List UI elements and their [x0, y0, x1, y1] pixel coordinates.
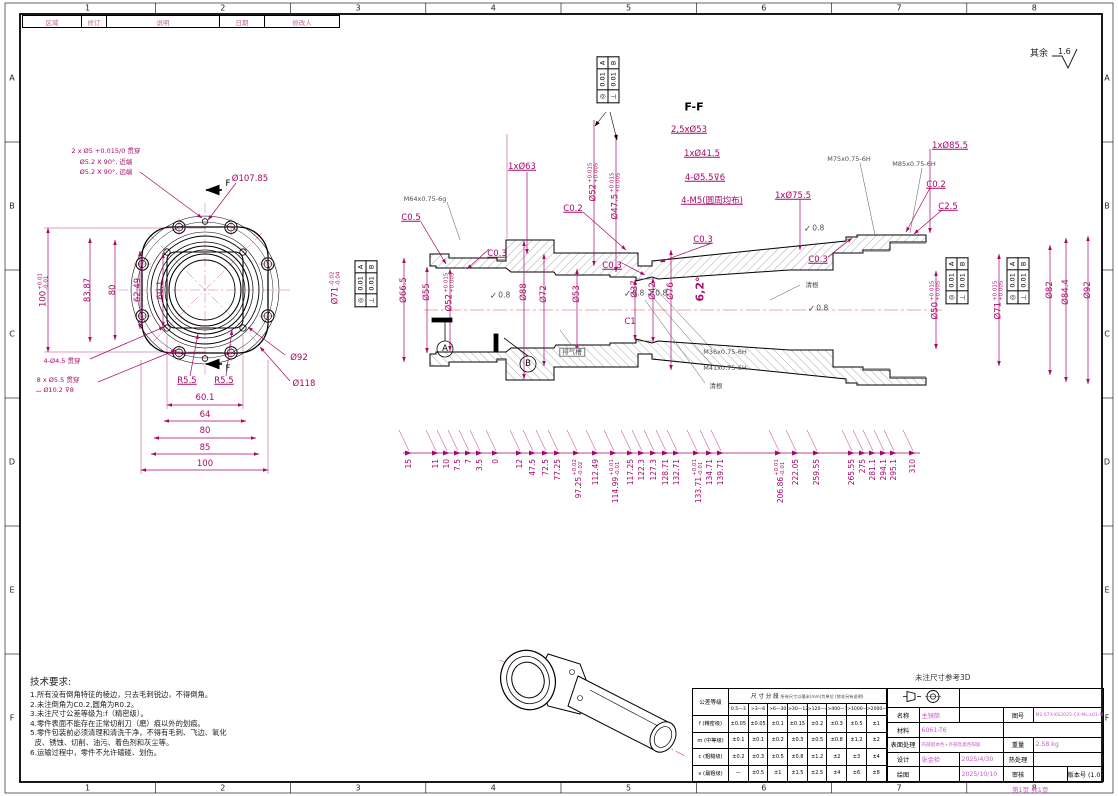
- dim-c0-5: C0.5: [401, 214, 420, 223]
- frame-col-6-top: 6: [761, 3, 766, 12]
- revision-header: 区域: [23, 16, 82, 27]
- note-qinggen-1: 清根: [806, 282, 819, 289]
- draw-label: 绘图: [887, 767, 919, 782]
- fcf-cell: 0.01: [597, 69, 608, 90]
- weight-value: 2.58 kg: [1033, 738, 1103, 753]
- chain-dim-281.1: 281.1: [869, 459, 877, 480]
- tol-value: ±0.05: [748, 716, 768, 733]
- dim-phi55: Ø55: [423, 283, 432, 301]
- tol-value: ±1.5: [788, 765, 808, 782]
- material-label: 材料: [887, 723, 919, 738]
- datum-a-label: A: [442, 345, 448, 354]
- dim-64: 64: [200, 411, 211, 420]
- note-8xphi5-5: 8 x Ø5.5 贯穿: [37, 377, 80, 384]
- chain-dim-0: 0: [492, 459, 500, 464]
- fcf-cell: A: [946, 258, 957, 269]
- chain-dim-12: 12: [516, 459, 524, 469]
- fcf-cell: B: [608, 57, 619, 68]
- dim-1x63: 1xØ63: [508, 163, 536, 172]
- frame-col-7-bottom: 7: [897, 784, 902, 793]
- tol-col-header: >1000—2000: [847, 704, 867, 716]
- dim-phi118: Ø118: [293, 380, 316, 389]
- frame-col-8-top: 8: [1032, 3, 1037, 12]
- frame-col-5-bottom: 5: [626, 784, 631, 793]
- frame-col-5-top: 5: [626, 3, 631, 12]
- dim-phi71-left: Ø71-0.02-0.04: [331, 272, 342, 305]
- tol-value: ±2.5: [807, 765, 827, 782]
- frame-row-B-right: B: [1104, 202, 1110, 211]
- name-label: 名称: [887, 707, 919, 723]
- tol-value: ±1.2: [847, 732, 867, 749]
- fcf-cell: B: [1018, 258, 1029, 269]
- fcf-cell: ◎: [355, 294, 366, 307]
- dim-c0-3-c: C0.3: [693, 236, 712, 245]
- dim-r5-5-right: R5.5: [214, 377, 233, 386]
- dim-1x85-5: 1xØ85.5: [932, 142, 968, 151]
- dim-c0-2-m: C0.2: [563, 205, 582, 214]
- frame-row-C-right: C: [1104, 330, 1110, 339]
- note-cbore: ⌴ Ø10.2 ⊽8: [36, 387, 74, 394]
- tol-value: ±0.5: [807, 732, 827, 749]
- frame-row-B-left: B: [9, 202, 15, 211]
- thread-m64: M64x0.75-6g: [404, 196, 447, 203]
- chain-dim-7: 7: [465, 459, 473, 464]
- chain-dim-127.3: 127.3: [650, 459, 658, 480]
- note-vent-groove: 排气槽: [559, 348, 585, 357]
- heat-label: 热处理: [1003, 752, 1033, 767]
- dwg-number: M2.67X-KS2025-CX-ML-L01-M11: [1033, 707, 1103, 723]
- finish-value: 内部铝本色+外部亮黑色阳极: [919, 738, 1003, 753]
- material-value: 6061-T6: [919, 723, 1003, 738]
- tol-col-header: >120—400: [807, 704, 827, 716]
- dim-phi92-right: Ø92: [1084, 281, 1093, 299]
- chain-dim-133.71: 133.71+0.01-0.01: [693, 459, 704, 503]
- fcf-cell: A: [355, 261, 366, 272]
- seg-title: 尺 寸 分 段: [751, 694, 779, 700]
- note-csk-near: Ø5.2 X 90°, 近端: [80, 159, 133, 166]
- chain-dim-310: 310: [909, 459, 917, 473]
- section-f-top: F: [226, 180, 231, 189]
- drawing-sheet: 1122334455667788AABBCCDDEEFF 区域修订说明日期修改人…: [0, 0, 1118, 796]
- chain-dim-295.1: 295.1: [890, 459, 898, 480]
- tol-value: ±0.5: [748, 765, 768, 782]
- tol-value: ±0.1: [748, 732, 768, 749]
- ref-3d-note: 未注尺寸参考3D: [915, 672, 971, 683]
- tol-value: ±2: [827, 749, 847, 766]
- tol-value: ±0.5: [847, 716, 867, 733]
- tol-value: ±3: [847, 749, 867, 766]
- dim-80-h: 80: [200, 427, 211, 436]
- heat-value: [1033, 752, 1103, 767]
- frame-col-6-bottom: 6: [761, 784, 766, 793]
- dim-phi84-4: Ø84.4: [1062, 279, 1071, 305]
- section-f-bot: F: [226, 365, 231, 374]
- tol-col-header: >30—120: [788, 704, 808, 716]
- chain-dim-47.5: 47.5: [529, 459, 537, 476]
- tol-value: ±0.5: [768, 749, 788, 766]
- fcf-cell: 0.01: [366, 273, 377, 294]
- fcf-cell: B: [957, 258, 968, 269]
- tech-line-5: 5.零件包装前必须清理和清洗干净，不得有毛刺、飞边、氧化: [30, 728, 227, 738]
- datum-fcf-phi71: ◎0.01A⊥0.01B: [1007, 258, 1030, 305]
- chain-dim-134.71: 134.71: [706, 459, 714, 485]
- dim-angle-6-2: 6,2°: [695, 277, 706, 302]
- dim-60-1-v: 60.1: [157, 281, 166, 300]
- frame-col-2-bottom: 2: [220, 784, 225, 793]
- dwg-label: 图号: [1003, 707, 1033, 723]
- chain-dim-114.99: 114.99+0.01-0.01: [610, 459, 621, 503]
- fcf-cell: ◎: [946, 291, 957, 304]
- dim-100-v: 100+0.01-0.01: [39, 273, 50, 307]
- dim-85: 85: [200, 444, 211, 453]
- seg-note: 所有尺寸以毫米(mm)为单位 (除非另有说明): [781, 694, 864, 699]
- tol-value: ±4: [866, 749, 886, 766]
- dim-c1: C1: [624, 318, 635, 327]
- dim-phi107-85: Ø107.85: [232, 175, 268, 184]
- dim-c0-3-b: C0.3: [602, 262, 621, 271]
- datum-fcf-left: ◎0.01A⊥0.01B: [355, 261, 378, 308]
- fcf-cell: A: [597, 57, 608, 68]
- surface-note-value: 1.6: [1058, 47, 1071, 56]
- tol-col-header: >3—6: [748, 704, 768, 716]
- draw-date: 2025/10/10: [959, 767, 1003, 782]
- fcf-cell: A: [1007, 258, 1018, 269]
- revision-header: 修订: [82, 16, 107, 27]
- dim-62-49: 62.49: [134, 278, 143, 302]
- thread-m41: M41x0.75-6H: [703, 365, 747, 372]
- revision-header: 日期: [220, 16, 265, 27]
- dim-phi88: Ø88: [520, 283, 529, 301]
- dim-phi82: Ø82: [1046, 281, 1055, 299]
- tol-row-label: c (粗糙级): [693, 749, 729, 766]
- fcf-cell: B: [366, 261, 377, 272]
- projection-symbol-icon: [897, 689, 949, 704]
- fcf-cell: 0.01: [355, 273, 366, 294]
- rough-2: 0.8: [624, 289, 644, 298]
- frame-col-4-bottom: 4: [491, 784, 496, 793]
- chain-dim-97.25: 97.25+0.02-0.02: [573, 459, 584, 498]
- chain-dim-122.3: 122.3: [638, 459, 646, 480]
- chain-dim-139.71: 139.71: [717, 459, 725, 485]
- tol-value: ±0.1: [729, 732, 749, 749]
- thread-m85: M85x0.75-6H: [892, 161, 936, 168]
- chain-dim-3.5: 3.5: [476, 459, 484, 471]
- rough-3: 0.8: [647, 289, 667, 298]
- note-4xphi4-5: 4-Ø4.5 贯穿: [43, 358, 80, 365]
- page-note: 第1页 共1页: [1012, 784, 1048, 794]
- chain-dim-112.49: 112.49: [592, 459, 600, 485]
- projection-symbol-cell: [887, 689, 959, 708]
- tech-line-2: 2.未注倒角为C0.2,圆角为R0.2。: [30, 700, 227, 710]
- tol-value: ±0.2: [768, 732, 788, 749]
- roughness-icon: 1.6: [1050, 46, 1084, 70]
- weight-label: 重量: [1003, 738, 1033, 753]
- tol-value: ±0.3: [827, 716, 847, 733]
- check-value: [1033, 767, 1067, 782]
- tol-value: ±1: [768, 765, 788, 782]
- fcf-cell: ⊥: [957, 291, 968, 304]
- tol-col-header: >400—1000: [827, 704, 847, 716]
- datum-fcf-top: ◎0.01A⊥0.01B: [597, 57, 620, 104]
- frame-col-3-bottom: 3: [356, 784, 361, 793]
- dim-phi52-left: Ø52+0.015+0.005: [445, 273, 456, 312]
- dim-83-87: 83.87: [84, 278, 93, 302]
- design-label: 设计: [887, 752, 919, 767]
- tol-value: ±0.3: [748, 749, 768, 766]
- designer-name: 张金检: [919, 752, 959, 767]
- chain-dim-275: 275: [859, 459, 867, 473]
- thread-m75: M75x0.75-6H: [827, 156, 871, 163]
- tol-value: ±0.2: [807, 716, 827, 733]
- rough-4: 0.8: [804, 224, 824, 233]
- revision-header: 说明: [107, 16, 220, 27]
- dim-100-h: 100: [197, 460, 213, 469]
- chain-dim-15: 15: [405, 459, 413, 469]
- dim-c0-3-d: C0.3: [808, 256, 827, 265]
- fcf-cell: ⊥: [1018, 291, 1029, 304]
- note-qinggen-2: 清根: [710, 383, 723, 390]
- chain-dim-117.25: 117.25: [627, 459, 635, 485]
- dim-phi71-right: Ø71+0.015+0.005: [994, 281, 1005, 320]
- fcf-cell: ⊥: [366, 294, 377, 307]
- chain-dim-206.86: 206.86+0.01-0.01: [775, 459, 786, 503]
- rough-1: 0.8: [490, 291, 510, 300]
- label-ff: F-F: [684, 102, 703, 113]
- chain-dim-11: 11: [432, 459, 440, 469]
- surface-finish-note: 其余 1.6: [1030, 46, 1084, 70]
- dim-r5-5-left: R5.5: [177, 377, 196, 386]
- tol-title: 公差等级: [693, 689, 729, 716]
- info-table: 名称 主镜筒 图号 M2.67X-KS2025-CX-ML-L01-M11 材料…: [887, 688, 1104, 782]
- design-date: 2025/4/30: [959, 752, 1003, 767]
- frame-row-E-right: E: [1104, 586, 1109, 595]
- frame-col-3-top: 3: [356, 3, 361, 12]
- title-block: 公差等级 尺 寸 分 段 所有尺寸以毫米(mm)为单位 (除非另有说明) 0.5…: [692, 688, 1104, 782]
- tech-line-3: 3.未注尺寸公差等级为:f（精密级）。: [30, 709, 227, 719]
- tech-line-4: 4.零件表面不能存在正常切削刀（磨）痕以外的划痕。: [30, 719, 227, 729]
- note-csk-far: Ø5.2 X 90°, 远端: [80, 169, 133, 176]
- chain-dim-72.5: 72.5: [542, 459, 550, 476]
- check-label: 审核: [1003, 767, 1033, 782]
- note-2xphi5: 2 x Ø5 +0.015/0 贯穿: [72, 148, 141, 155]
- dim-4x5-5: 4-Ø5.5⊽6: [685, 174, 725, 183]
- fcf-cell: ◎: [597, 90, 608, 103]
- tol-row-label: v (最粗级): [693, 765, 729, 782]
- tol-value: ±1: [866, 716, 886, 733]
- fcf-cell: 0.01: [946, 270, 957, 291]
- datum-fcf-phi50: ◎0.01A⊥0.01B: [946, 258, 969, 305]
- chain-dim-7.5: 7.5: [454, 459, 462, 471]
- chain-dim-265.55: 265.55: [848, 459, 856, 485]
- chain-dim-132.71: 132.71: [673, 459, 681, 485]
- dim-phi66-5: Ø66.5: [400, 277, 409, 303]
- fcf-cell: 0.01: [1007, 270, 1018, 291]
- tol-col-header: >6—30: [768, 704, 788, 716]
- frame-col-4-top: 4: [491, 3, 496, 12]
- frame-row-E-left: E: [9, 586, 14, 595]
- tol-value: ±0.05: [729, 716, 749, 733]
- chain-dim-128.71: 128.71: [662, 459, 670, 485]
- dim-c2-5: C2.5: [938, 203, 957, 212]
- rough-5: 0.8: [808, 304, 828, 313]
- frame-col-1-top: 1: [85, 3, 90, 12]
- datum-b-label: B: [525, 360, 531, 369]
- frame-col-7-top: 7: [897, 3, 902, 12]
- tol-row-label: m (中等级): [693, 732, 729, 749]
- tol-value: ±1.2: [807, 749, 827, 766]
- dim-c0-2-r: C0.2: [926, 181, 945, 190]
- fcf-cell: 0.01: [1018, 270, 1029, 291]
- dim-2-5x53: 2,5xØ53: [671, 126, 707, 135]
- tol-value: ±2: [866, 732, 886, 749]
- tol-value: ±6: [847, 765, 867, 782]
- chain-dim-259.55: 259.55: [813, 459, 821, 485]
- tol-value: ±8: [866, 765, 886, 782]
- revision-header: 修改人: [265, 16, 339, 27]
- frame-row-D-left: D: [9, 458, 15, 467]
- dim-phi47-5: Ø47.5+0.015+0.005: [611, 173, 622, 220]
- tech-line-7: 6.运输过程中，零件不允许磕碰、划伤。: [30, 748, 227, 758]
- thread-m36: M36x0.75-6H: [703, 349, 747, 356]
- tol-value: —: [729, 765, 749, 782]
- frame-col-1-bottom: 1: [85, 784, 90, 793]
- dim-4m5: 4-M5(圆周均布): [681, 197, 743, 206]
- tol-value: ±0.3: [788, 732, 808, 749]
- dim-phi50-right: Ø50+0.015+0.005: [931, 281, 942, 320]
- section-view: [399, 112, 1088, 456]
- tolerance-table: 公差等级 尺 寸 分 段 所有尺寸以毫米(mm)为单位 (除非另有说明) 0.5…: [692, 688, 887, 782]
- iso-view: [492, 643, 685, 757]
- tol-value: ±0.8: [827, 732, 847, 749]
- tol-value: ±0.2: [729, 749, 749, 766]
- dim-1x41-5: 1xØ41.5: [684, 150, 720, 159]
- fcf-cell: 0.01: [608, 69, 619, 90]
- frame-row-F-right: F: [1105, 714, 1110, 723]
- dim-phi92-front: Ø92: [290, 354, 308, 363]
- version-note: 版本号 (1.0): [1067, 767, 1103, 782]
- chain-dim-10: 10: [443, 459, 451, 469]
- surface-note-prefix: 其余: [1030, 46, 1048, 59]
- dim-phi72: Ø72: [540, 285, 549, 303]
- dim-phi76: Ø76: [667, 282, 676, 300]
- chain-dim-77.25: 77.25: [554, 459, 562, 480]
- tol-col-header: 0.5—3: [729, 704, 749, 716]
- dim-phi53: Ø53: [573, 285, 582, 303]
- dim-1x75-5: 1xØ75.5: [775, 192, 811, 201]
- frame-col-2-top: 2: [220, 3, 225, 12]
- tol-value: ±0.15: [788, 716, 808, 733]
- tol-value: ±0.8: [788, 749, 808, 766]
- tol-value: ±4: [827, 765, 847, 782]
- dim-80-v: 80: [109, 285, 118, 296]
- frame-row-A-right: A: [1104, 74, 1109, 83]
- tech-line-1: 1.所有没有倒角特征的棱边，只去毛刺锐边，不得倒角。: [30, 690, 227, 700]
- front-view: [44, 172, 292, 474]
- finish-label: 表面处理: [887, 738, 919, 753]
- fcf-cell: ◎: [1007, 291, 1018, 304]
- technical-requirements: 技术要求: 1.所有没有倒角特征的棱边，只去毛刺锐边，不得倒角。2.未注倒角为C…: [30, 674, 227, 757]
- frame-row-D-right: D: [1104, 458, 1110, 467]
- frame-row-F-left: F: [10, 714, 15, 723]
- dim-60-1-h: 60.1: [196, 394, 215, 403]
- fcf-cell: 0.01: [957, 270, 968, 291]
- chain-dim-222.05: 222.05: [792, 459, 800, 485]
- frame-row-A-left: A: [9, 74, 14, 83]
- tech-line-6: 皮、锈蚀、切削、油污、着色剂和灰尘等。: [30, 738, 227, 748]
- chain-dim-294.1: 294.1: [880, 459, 888, 480]
- tol-col-header: >2000—4000: [866, 704, 886, 716]
- tol-value: ±0.1: [768, 716, 788, 733]
- fcf-cell: ⊥: [608, 90, 619, 103]
- revision-table: 区域修订说明日期修改人: [22, 15, 340, 28]
- tol-row-label: f (精密级): [693, 716, 729, 733]
- frame-row-C-left: C: [9, 330, 15, 339]
- dim-phi52-top: Ø52+0.015+0.005: [589, 163, 600, 202]
- part-name: 主镜筒: [919, 707, 959, 723]
- tech-title: 技术要求:: [30, 674, 227, 688]
- dim-c0-3-a: C0.3: [487, 250, 506, 259]
